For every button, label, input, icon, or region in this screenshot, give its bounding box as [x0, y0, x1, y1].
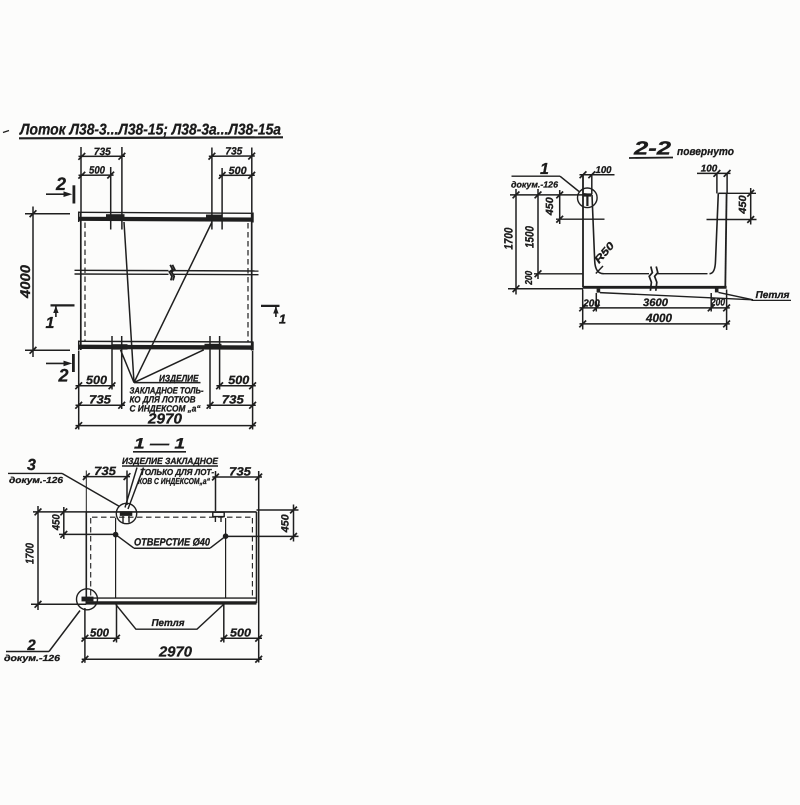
svg-text:3: 3	[27, 457, 36, 474]
svg-text:735: 735	[89, 393, 111, 407]
svg-text:450: 450	[280, 514, 292, 533]
svg-text:200: 200	[582, 298, 600, 309]
svg-text:повернуто: повернуто	[677, 146, 734, 158]
svg-text:500: 500	[89, 165, 105, 177]
svg-text:1500: 1500	[523, 226, 537, 248]
svg-text:1: 1	[540, 161, 549, 178]
svg-text:4000: 4000	[17, 265, 33, 299]
svg-text:2970: 2970	[158, 645, 192, 661]
svg-text:С ИНДЕКСОМ „а“: С ИНДЕКСОМ „а“	[130, 403, 201, 413]
svg-text:2: 2	[55, 174, 66, 194]
svg-text:Петля: Петля	[152, 618, 185, 629]
svg-text:500: 500	[90, 628, 110, 640]
svg-text:200: 200	[524, 270, 535, 285]
svg-text:1: 1	[46, 315, 55, 332]
svg-text:3600: 3600	[643, 297, 668, 309]
svg-text:450: 450	[737, 195, 749, 215]
svg-text:735: 735	[94, 146, 111, 158]
svg-text:2970: 2970	[147, 411, 182, 427]
svg-text:докум.-126: докум.-126	[511, 180, 558, 190]
svg-text:1 — 1: 1 — 1	[134, 436, 185, 453]
svg-text:4000: 4000	[645, 311, 672, 325]
svg-text:100: 100	[596, 165, 613, 176]
svg-text:ИЗДЕЛИЕ: ИЗДЕЛИЕ	[159, 373, 199, 384]
svg-text:1700: 1700	[501, 227, 515, 249]
svg-text:докум.-126: докум.-126	[4, 653, 60, 663]
svg-text:1: 1	[279, 312, 286, 327]
svg-text:Лоток Л38-3...Л38-15; Л38-3а..: Лоток Л38-3...Л38-15; Л38-3а...Л38-15а	[19, 122, 281, 139]
svg-text:735: 735	[94, 464, 116, 478]
svg-text:ИЗДЕЛИЕ ЗАКЛАДНОЕ: ИЗДЕЛИЕ ЗАКЛАДНОЕ	[122, 456, 219, 466]
svg-text:500: 500	[86, 373, 107, 387]
svg-text:735: 735	[225, 146, 242, 158]
svg-text:500: 500	[228, 373, 249, 387]
svg-text:735: 735	[229, 464, 251, 478]
svg-text:2: 2	[57, 366, 68, 386]
svg-text:200: 200	[710, 298, 725, 309]
svg-text:2-2: 2-2	[633, 139, 672, 160]
svg-text:КОВ С ИНДЕКСОМ„а“: КОВ С ИНДЕКСОМ„а“	[138, 476, 211, 486]
svg-text:100: 100	[701, 163, 718, 174]
svg-text:500: 500	[229, 165, 247, 177]
svg-text:450: 450	[544, 197, 556, 216]
svg-text:450: 450	[50, 514, 62, 531]
svg-text:735: 735	[222, 393, 244, 407]
svg-text:Петля: Петля	[756, 290, 790, 301]
svg-text:500: 500	[230, 628, 252, 640]
svg-text:1700: 1700	[25, 543, 37, 564]
svg-text:ОТВЕРСТИЕ Ø40: ОТВЕРСТИЕ Ø40	[134, 537, 210, 549]
svg-text:докум.-126: докум.-126	[9, 475, 63, 485]
